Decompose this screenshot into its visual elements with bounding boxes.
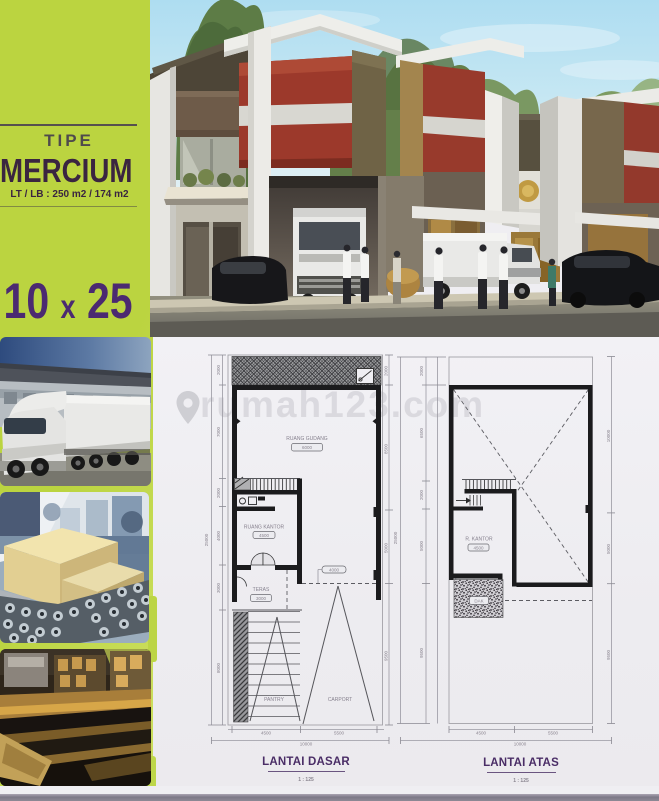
svg-text:8000: 8000 (216, 662, 221, 673)
svg-text:25000: 25000 (204, 533, 209, 546)
svg-text:CARPORT: CARPORT (328, 697, 352, 703)
svg-text:4500: 4500 (473, 545, 484, 550)
svg-text:4500: 4500 (476, 731, 487, 736)
svg-text:DAK: DAK (474, 599, 483, 604)
svg-text:2000: 2000 (419, 489, 424, 500)
svg-text:9500: 9500 (419, 647, 424, 658)
svg-text:4000: 4000 (216, 530, 221, 541)
svg-text:9500: 9500 (384, 650, 389, 661)
svg-text:rumah123.com: rumah123.com (200, 384, 485, 425)
svg-text:5500: 5500 (548, 731, 559, 736)
svg-text:10000: 10000 (300, 742, 313, 747)
svg-text:4500: 4500 (259, 533, 270, 538)
svg-text:4000: 4000 (329, 567, 340, 572)
svg-text:6000: 6000 (302, 445, 313, 450)
svg-text:7000: 7000 (216, 426, 221, 437)
svg-text:5500: 5500 (334, 731, 345, 736)
svg-text:TERAS: TERAS (253, 587, 270, 593)
svg-text:RUANG GUDANG: RUANG GUDANG (286, 436, 328, 442)
svg-text:9500: 9500 (606, 649, 611, 660)
svg-text:RUANG KANTOR: RUANG KANTOR (244, 525, 285, 531)
svg-text:4500: 4500 (261, 731, 272, 736)
svg-text:2000: 2000 (216, 364, 221, 375)
svg-text:5000: 5000 (419, 540, 424, 551)
svg-text:2000: 2000 (216, 487, 221, 498)
svg-text:R. KANTOR: R. KANTOR (465, 537, 493, 543)
svg-text:5000: 5000 (384, 542, 389, 553)
svg-text:10000: 10000 (514, 742, 527, 747)
svg-text:6500: 6500 (419, 427, 424, 438)
svg-text:10000: 10000 (606, 429, 611, 442)
svg-text:3000: 3000 (216, 582, 221, 593)
svg-text:2000: 2000 (384, 365, 389, 376)
svg-text:3000: 3000 (256, 596, 267, 601)
svg-text:25000: 25000 (393, 531, 398, 544)
svg-text:PANTRY: PANTRY (264, 697, 284, 703)
svg-text:2000: 2000 (419, 365, 424, 376)
svg-text:5000: 5000 (606, 543, 611, 554)
svg-text:8500: 8500 (384, 443, 389, 454)
